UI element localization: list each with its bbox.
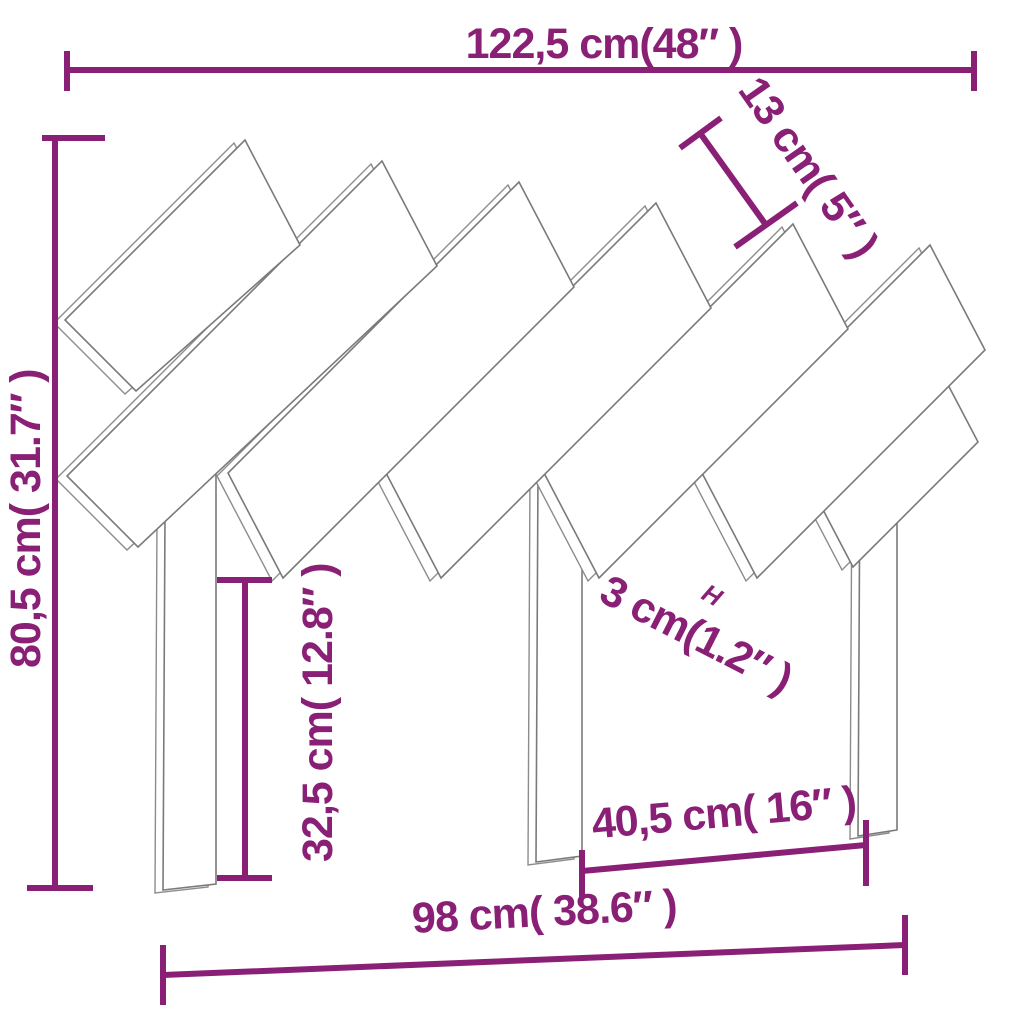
dim-bottom-width: 98 cm( 38.6″ ) bbox=[163, 881, 905, 1005]
dimension-label-bottom-width: 98 cm( 38.6″ ) bbox=[411, 881, 678, 943]
dimension-label-leg-height: 32,5 cm( 12.8″ ) bbox=[294, 563, 342, 862]
dim-leg-height: 32,5 cm( 12.8″ ) bbox=[217, 563, 342, 878]
dim-slat-thickness: H 3 cm(1.2″ ) bbox=[592, 566, 799, 703]
leg-left-face bbox=[163, 468, 216, 890]
dimension-line bbox=[163, 945, 905, 975]
dimension-tick bbox=[680, 118, 721, 148]
dimension-label-top-width: 122,5 cm(48″ ) bbox=[466, 20, 743, 68]
leg-left bbox=[155, 468, 216, 893]
thickness-marker: H bbox=[697, 579, 727, 613]
dim-top-width: 122,5 cm(48″ ) bbox=[67, 20, 974, 91]
headboard-dimension-diagram: 122,5 cm(48″ ) 13 cm( 5″ ) 80,5 cm( 31.7… bbox=[0, 0, 1024, 1024]
dimension-label-slat-thickness: 3 cm(1.2″ ) bbox=[592, 566, 799, 703]
dim-leg-spacing: 40,5 cm( 16″ ) bbox=[582, 778, 866, 897]
dimension-diagram-page: 122,5 cm(48″ ) 13 cm( 5″ ) 80,5 cm( 31.7… bbox=[0, 0, 1024, 1024]
dimension-label-total-height: 80,5 cm( 31.7″ ) bbox=[2, 369, 50, 668]
dimension-line bbox=[582, 845, 866, 871]
dimension-label-leg-spacing: 40,5 cm( 16″ ) bbox=[590, 778, 858, 849]
dimension-line bbox=[700, 133, 766, 225]
